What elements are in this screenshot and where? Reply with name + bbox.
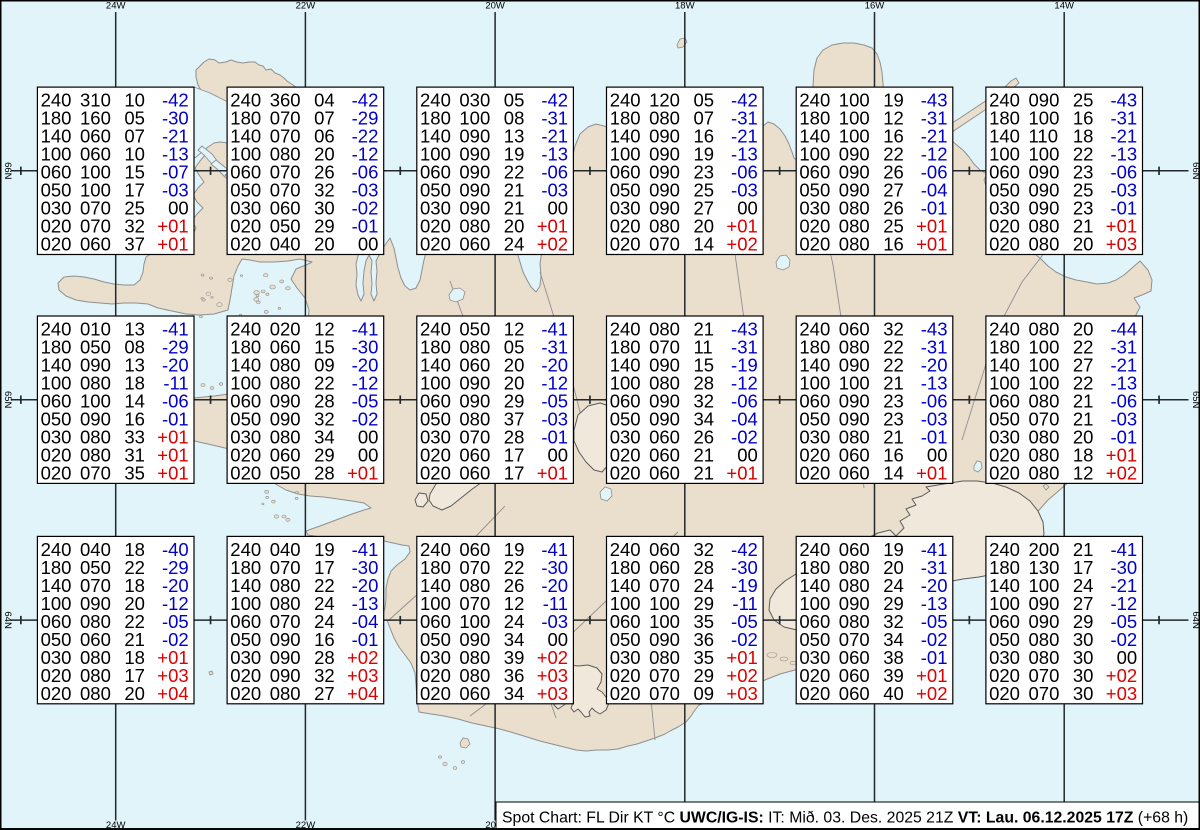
svg-text:22W: 22W [296, 1, 316, 12]
svg-text:65N: 65N [2, 391, 13, 409]
svg-text:Spot Chart: FL Dir KT °C UWC/I: Spot Chart: FL Dir KT °C UWC/IG-IS: IT: … [502, 810, 1188, 827]
svg-text:16W: 16W [865, 1, 885, 12]
svg-text:66N: 66N [2, 162, 13, 180]
svg-text:65N: 65N [1190, 391, 1200, 409]
svg-text:64N: 64N [2, 611, 13, 629]
svg-text:14W: 14W [1054, 1, 1074, 12]
svg-text:18W: 18W [675, 1, 695, 12]
svg-text:20W: 20W [485, 1, 505, 12]
svg-text:66N: 66N [1190, 162, 1200, 180]
svg-text:64N: 64N [1190, 611, 1200, 629]
svg-text:24W: 24W [106, 1, 126, 12]
